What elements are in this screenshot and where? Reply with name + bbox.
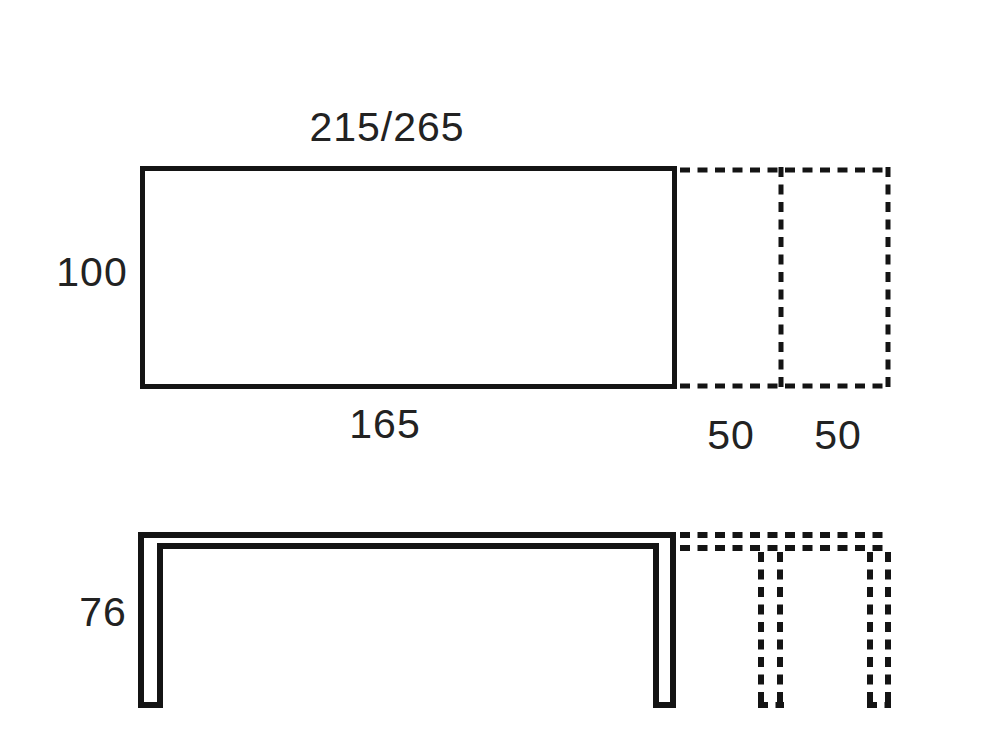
dimension-label-height: 76 <box>79 589 127 635</box>
side-view: 76 <box>79 532 891 708</box>
side-tabletop-bottom-edge <box>160 543 656 549</box>
side-left-leg-outer-edge <box>138 532 144 708</box>
side-left-leg-bottom-cap <box>138 702 163 708</box>
side-left-leg-inner-edge <box>157 543 163 708</box>
side-right-leg-inner-edge <box>653 543 659 708</box>
diagram-drawing: 215/265 100 165 50 50 <box>0 0 1000 750</box>
side-tabletop-top-edge <box>138 532 676 538</box>
dimension-label-table-length: 165 <box>349 401 420 447</box>
dimension-label-extension-left: 50 <box>707 412 755 458</box>
dimension-diagram: 215/265 100 165 50 50 <box>0 0 1000 750</box>
dimension-label-extension-right: 50 <box>814 412 862 458</box>
side-right-leg-bottom-cap <box>653 702 676 708</box>
side-right-leg-outer-edge <box>670 532 676 708</box>
dimension-label-depth: 100 <box>56 249 127 295</box>
plan-tabletop-outline <box>143 169 675 387</box>
dimension-label-total-length: 215/265 <box>309 104 464 150</box>
plan-view: 215/265 100 165 50 50 <box>56 104 890 458</box>
